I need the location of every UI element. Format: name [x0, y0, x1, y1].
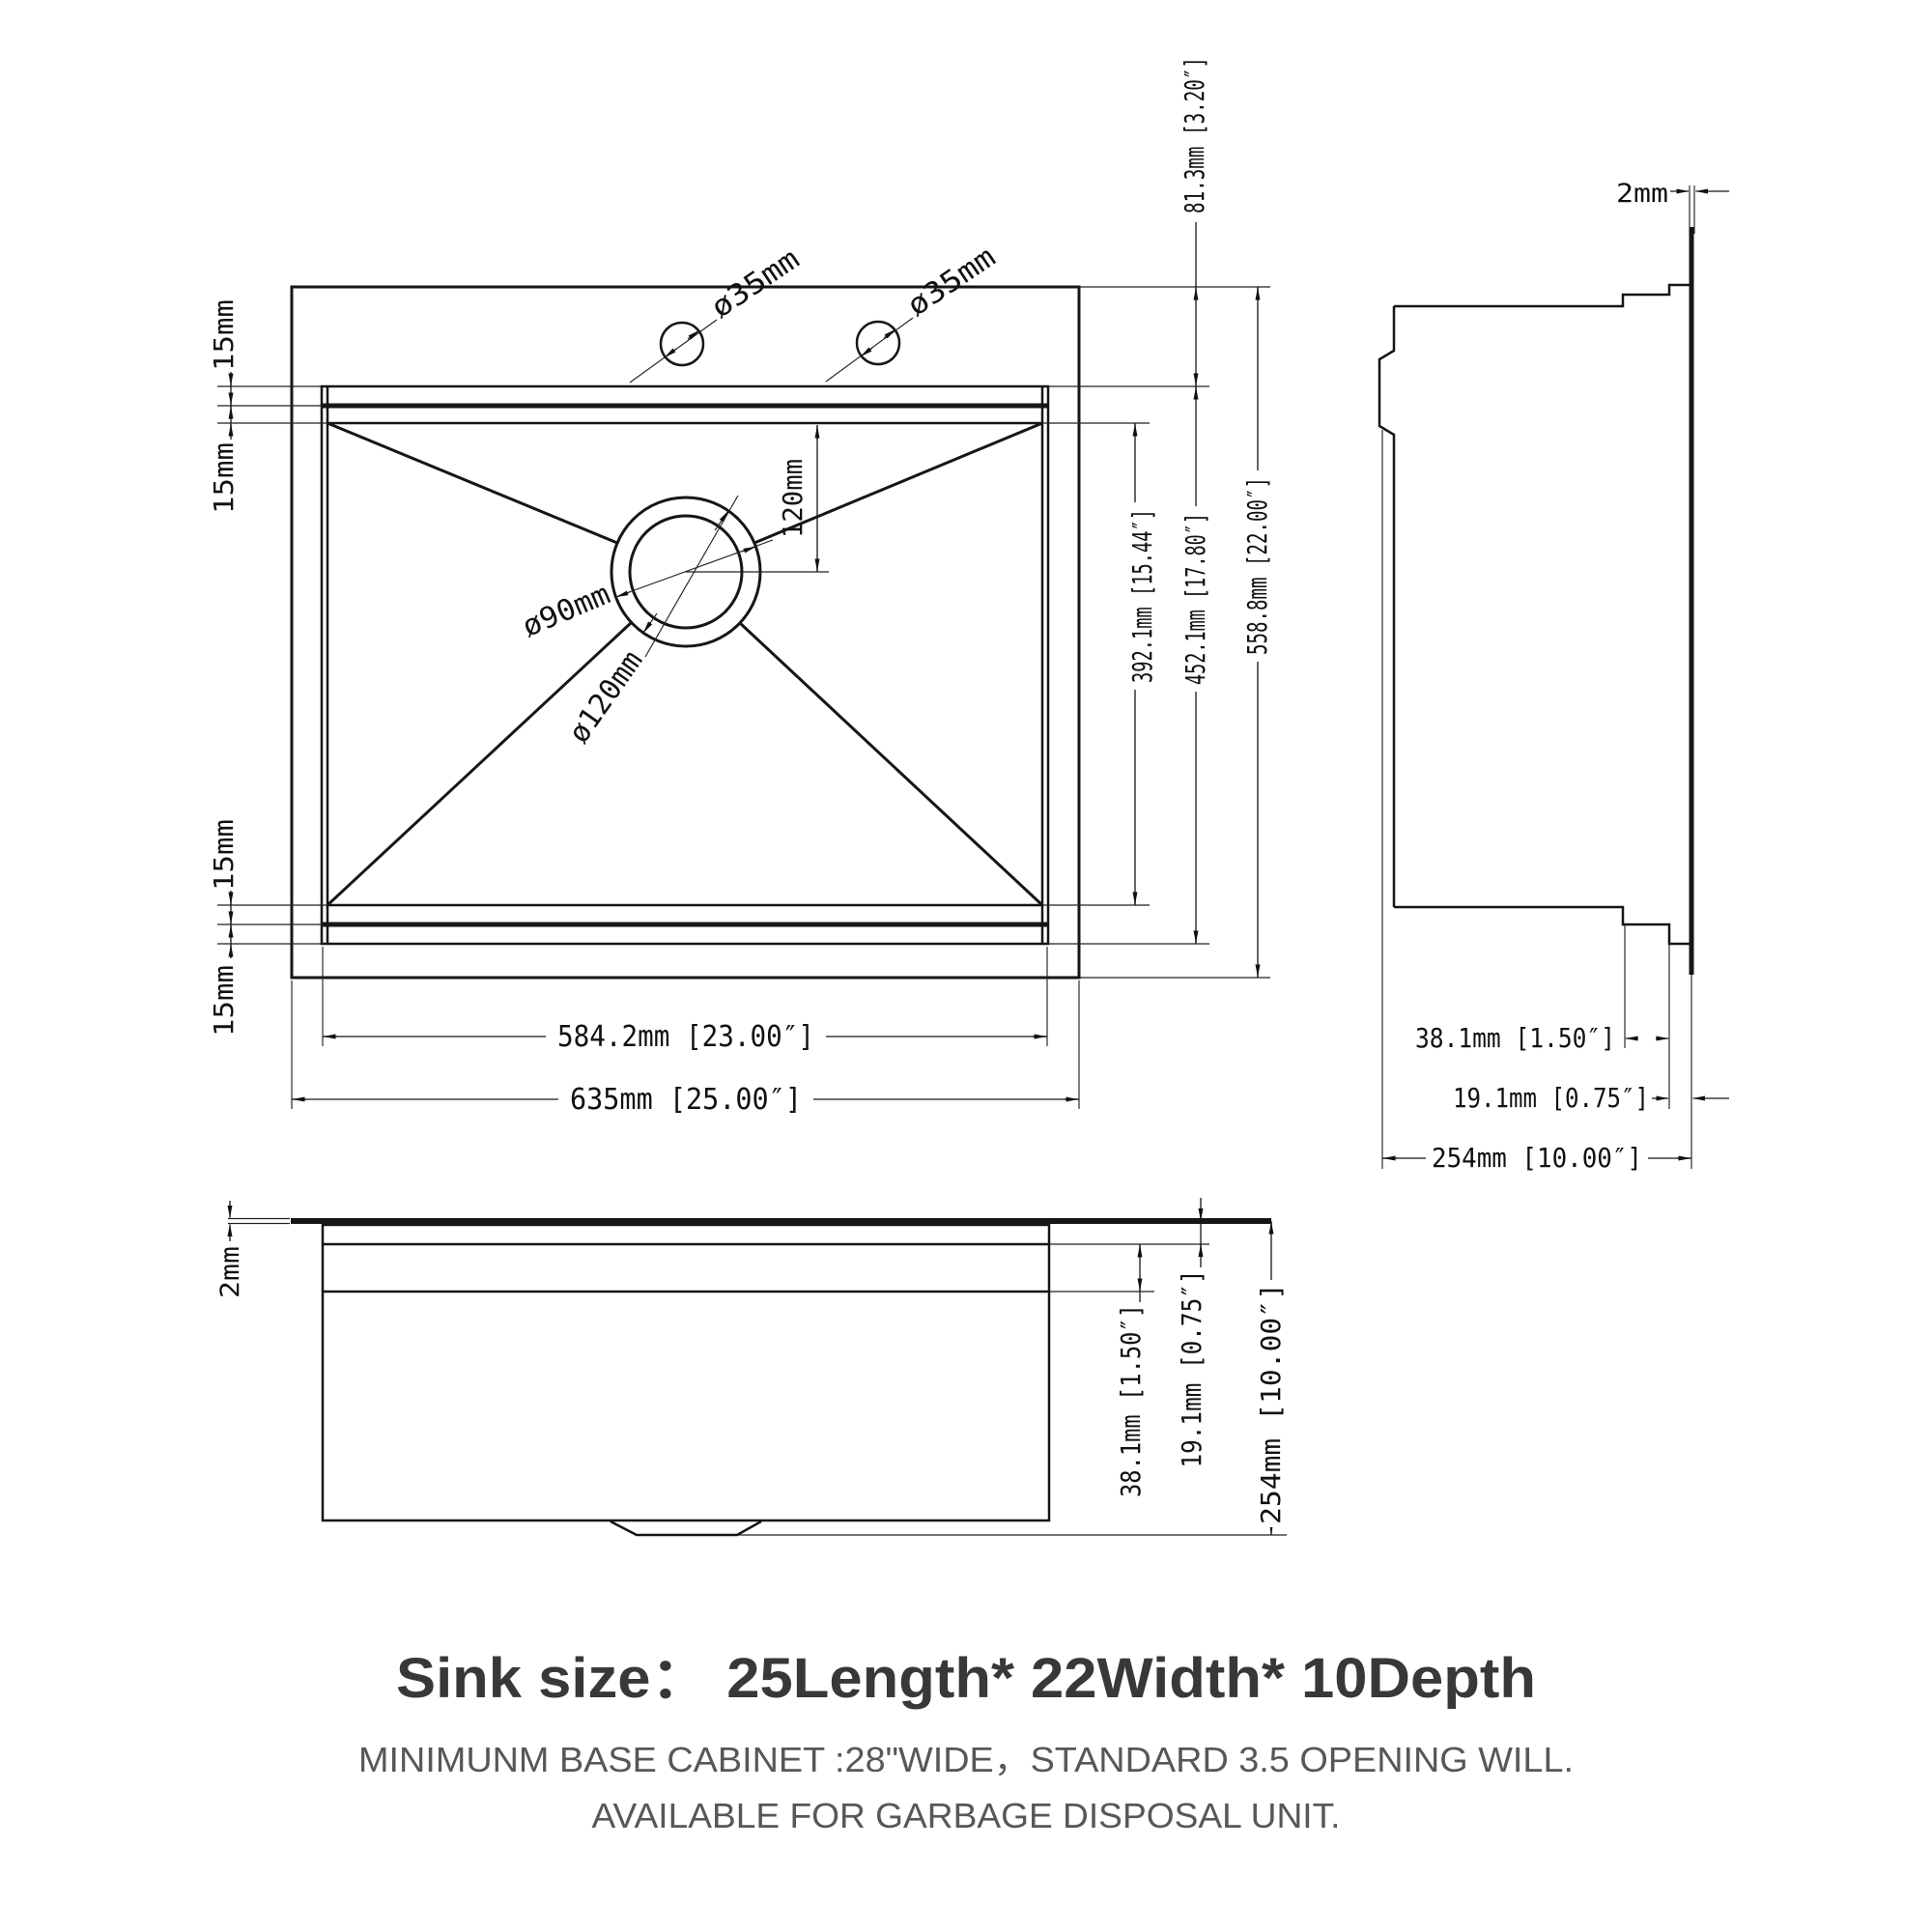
- side-dim-19-text: 19.1mm [0.75″]: [1453, 1082, 1649, 1114]
- front-254-dimension: 254mm [10.00″]: [1255, 1221, 1287, 1535]
- basin-diagonals: [327, 423, 1042, 905]
- sink-size-title: Sink size： 25Length* 22Width* 10Depth: [396, 1647, 1536, 1710]
- drain-inner-label: ø90mm: [518, 578, 615, 644]
- drain-offset-dim-text: 120mm: [777, 459, 809, 538]
- front-dim-19-text: 19.1mm [0.75″]: [1176, 1270, 1207, 1468]
- sink-dimension-drawing: ø35mm ø35mm ø120mm ø90mm 120mm: [0, 0, 1932, 1932]
- faucet-label-left: ø35mm: [705, 242, 806, 326]
- front-38-dimension: 38.1mm [1.50″]: [1115, 1244, 1147, 1497]
- front-dim-2-text: 2mm: [215, 1246, 245, 1298]
- dim-392-text: 392.1mm [15.44″]: [1126, 509, 1158, 683]
- footer: Sink size： 25Length* 22Width* 10Depth MI…: [358, 1647, 1574, 1835]
- faucet-label-right: ø35mm: [901, 241, 1002, 324]
- drain-outer-label: ø120mm: [562, 644, 650, 750]
- front-2mm-dimension: 2mm: [215, 1201, 290, 1298]
- edge-dim-top-1: 15mm: [208, 299, 240, 371]
- left-edge-dimensions: 15mm 15mm 15mm 15mm: [208, 299, 327, 1037]
- front-19-dimension: 19.1mm [0.75″]: [1176, 1198, 1207, 1468]
- dim-81-text: 81.3mm [3.20″]: [1179, 57, 1210, 213]
- faucet-hole-left: [661, 323, 703, 365]
- side-254-dimension: 254mm [10.00″]: [1382, 1141, 1691, 1176]
- note-line-1: MINIMUNM BASE CABINET :28"WIDE，STANDARD …: [358, 1740, 1574, 1779]
- side-19-dimension: 19.1mm [0.75″]: [1453, 1082, 1729, 1114]
- dim-635-text: 635mm [25.00″]: [570, 1083, 802, 1117]
- dim-584-text: 584.2mm [23.00″]: [557, 1020, 814, 1054]
- front-view-drain: [611, 1521, 761, 1535]
- faucet-hole-callouts: ø35mm ø35mm: [630, 241, 1002, 383]
- side-2mm-dimension: 2mm: [1616, 179, 1729, 234]
- side-38-dimension: 38.1mm [1.50″]: [1415, 1022, 1668, 1054]
- top-view-rim-rect: [322, 386, 1048, 944]
- dim-452-text: 452.1mm [17.80″]: [1179, 513, 1211, 685]
- front-dim-254-text: 254mm [10.00″]: [1255, 1283, 1287, 1524]
- side-dim-254-text: 254mm [10.00″]: [1432, 1142, 1642, 1174]
- top-view: ø35mm ø35mm ø120mm ø90mm 120mm: [208, 57, 1273, 1119]
- side-dim-2-text: 2mm: [1616, 179, 1668, 209]
- note-line-2: AVAILABLE FOR GARBAGE DISPOSAL UNIT.: [592, 1796, 1341, 1835]
- side-view-left-profile: [1379, 306, 1394, 907]
- edge-dim-bottom-1: 15mm: [208, 819, 240, 891]
- drawing-canvas: ø35mm ø35mm ø120mm ø90mm 120mm: [0, 0, 1932, 1932]
- top-view-outer-rect: [292, 287, 1079, 978]
- edge-dim-bottom-2: 15mm: [208, 965, 240, 1037]
- side-dim-38-text: 38.1mm [1.50″]: [1415, 1022, 1615, 1054]
- edge-dim-top-2: 15mm: [208, 442, 240, 514]
- front-view-body: [323, 1225, 1049, 1520]
- front-dim-38-text: 38.1mm [1.50″]: [1115, 1304, 1147, 1497]
- front-view: 2mm 38.1mm [1.50″] 19.1mm [0.75″] 25: [215, 1198, 1287, 1535]
- side-view: 2mm 38.1mm [1.50″] 19.1mm [0.75″] 254mm …: [1379, 179, 1729, 1176]
- bottom-width-dimensions: 584.2mm [23.00″] 635mm [25.00″]: [292, 947, 1079, 1119]
- dim-558-text: 558.8mm [22.00″]: [1241, 477, 1273, 655]
